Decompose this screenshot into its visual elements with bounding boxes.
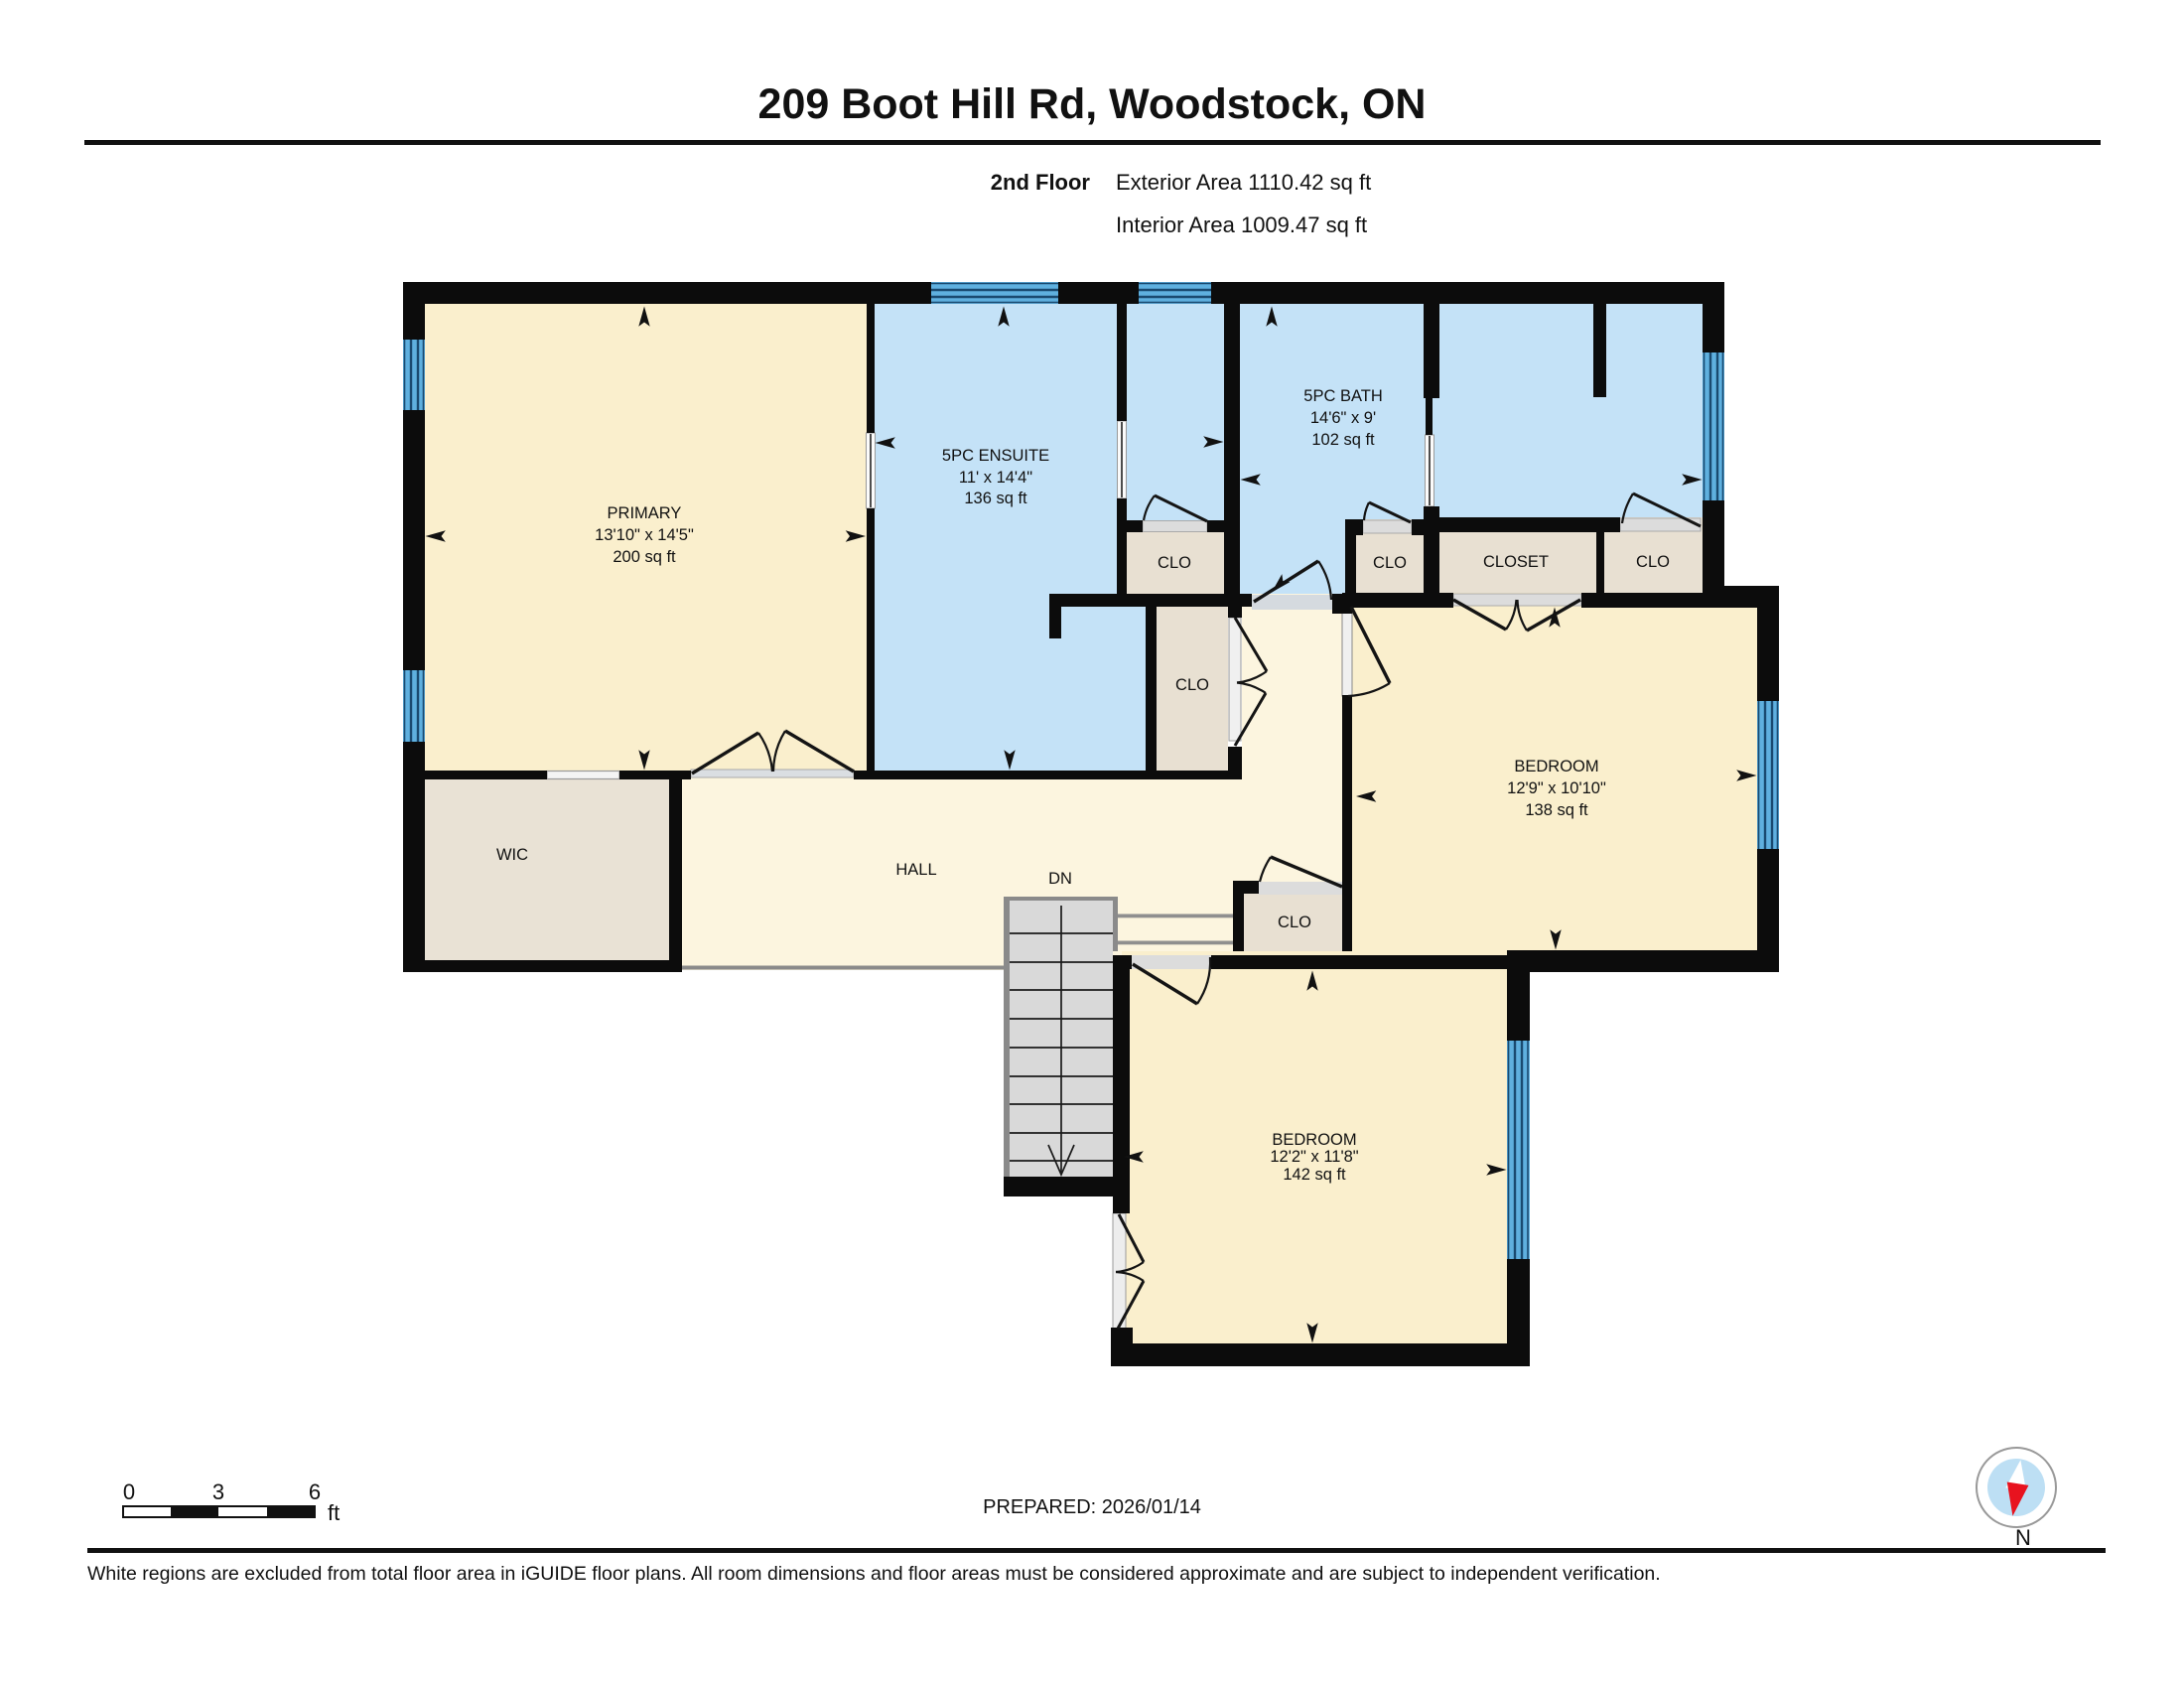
svg-text:0: 0 <box>123 1479 135 1504</box>
svg-text:White regions are excluded fro: White regions are excluded from total fl… <box>87 1563 1661 1585</box>
svg-text:CLO: CLO <box>1278 914 1311 931</box>
svg-text:CLO: CLO <box>1158 554 1191 572</box>
svg-text:CLO: CLO <box>1636 553 1670 571</box>
svg-text:Exterior Area 1110.42 sq ft: Exterior Area 1110.42 sq ft <box>1116 170 1371 195</box>
svg-text:DN: DN <box>1048 870 1072 888</box>
svg-text:200 sq ft: 200 sq ft <box>613 548 676 566</box>
svg-text:HALL: HALL <box>895 861 936 879</box>
svg-text:102 sq ft: 102 sq ft <box>1311 431 1375 449</box>
svg-text:5PC ENSUITE: 5PC ENSUITE <box>942 447 1049 465</box>
svg-text:142 sq ft: 142 sq ft <box>1283 1166 1346 1184</box>
svg-text:ft: ft <box>328 1500 340 1525</box>
svg-text:3: 3 <box>212 1479 224 1504</box>
svg-text:PREPARED: 2026/01/14: PREPARED: 2026/01/14 <box>983 1496 1201 1518</box>
svg-text:CLO: CLO <box>1373 554 1407 572</box>
svg-text:BEDROOM: BEDROOM <box>1514 758 1598 775</box>
svg-text:11' x 14'4": 11' x 14'4" <box>959 469 1032 487</box>
svg-text:6: 6 <box>309 1479 321 1504</box>
svg-text:12'2" x 11'8": 12'2" x 11'8" <box>1270 1148 1358 1166</box>
svg-text:N: N <box>2015 1525 2031 1550</box>
svg-text:13'10" x 14'5": 13'10" x 14'5" <box>595 526 694 544</box>
svg-text:CLOSET: CLOSET <box>1483 553 1549 571</box>
svg-text:138 sq ft: 138 sq ft <box>1525 801 1588 819</box>
svg-text:BEDROOM: BEDROOM <box>1272 1131 1356 1149</box>
svg-text:136 sq ft: 136 sq ft <box>964 490 1027 507</box>
svg-text:Interior Area 1009.47 sq ft: Interior Area 1009.47 sq ft <box>1116 212 1367 237</box>
svg-text:PRIMARY: PRIMARY <box>608 504 682 522</box>
svg-text:12'9" x 10'10": 12'9" x 10'10" <box>1507 779 1606 797</box>
svg-text:5PC BATH: 5PC BATH <box>1303 387 1382 405</box>
svg-text:14'6" x 9': 14'6" x 9' <box>1310 409 1376 427</box>
svg-text:CLO: CLO <box>1175 676 1209 694</box>
svg-text:2nd Floor: 2nd Floor <box>991 170 1091 195</box>
svg-text:209 Boot Hill Rd, Woodstock, O: 209 Boot Hill Rd, Woodstock, ON <box>758 80 1427 128</box>
svg-text:WIC: WIC <box>496 846 528 864</box>
